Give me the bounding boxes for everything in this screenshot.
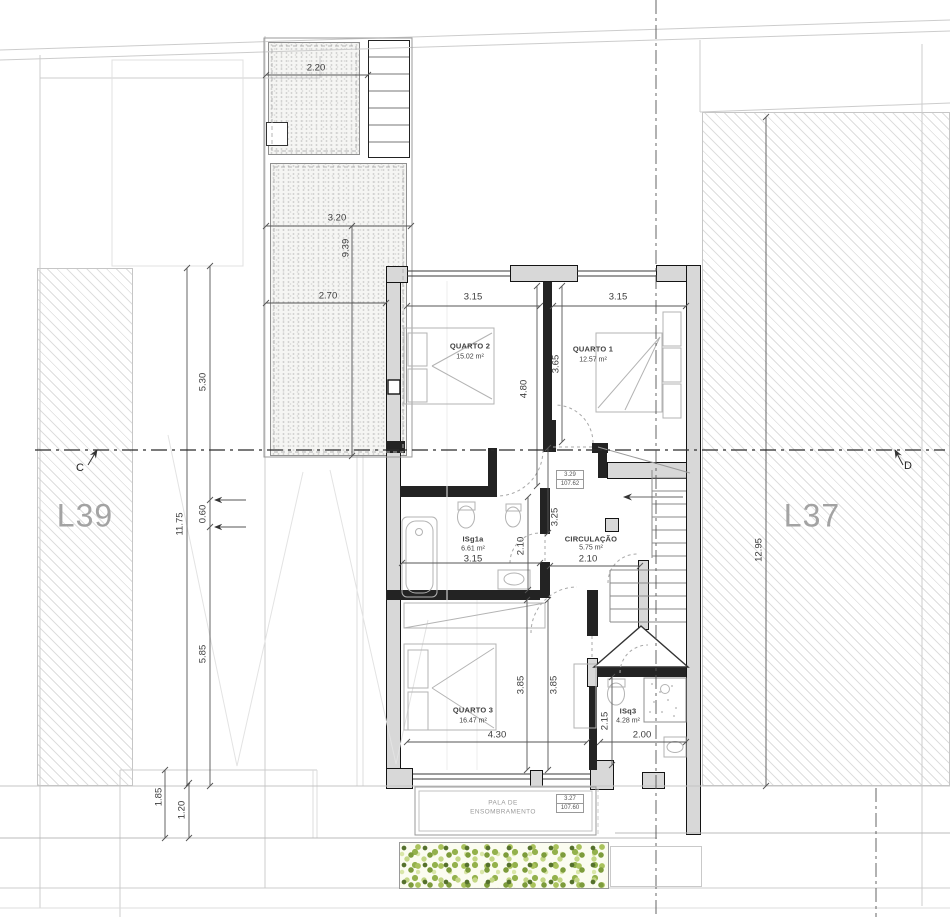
level-marker-floor: 3.29 107.62: [556, 470, 584, 489]
dim-quarto1-depth: 3.65: [551, 355, 562, 374]
dim-quarto2-width: 3.15: [464, 292, 483, 303]
canopy-label-line1: PALA DE: [488, 800, 517, 807]
dim-isq3-depth: 2.15: [600, 712, 611, 731]
dim-left-bottom-b: 1.20: [177, 801, 188, 820]
room-area-quarto1: 12.57 m²: [579, 357, 607, 364]
dim-terrace-width-mid: 3.20: [328, 213, 347, 224]
section-marker-d: D: [904, 460, 912, 472]
section-marker-c: C: [76, 462, 84, 474]
dim-isg1a-depth: 2.10: [516, 537, 527, 556]
dimension-lines: [162, 72, 769, 841]
room-label-quarto2: QUARTO 2: [450, 342, 490, 351]
level-floor-absolute: 107.62: [557, 480, 583, 488]
room-label-circulacao: CIRCULAÇÃO: [565, 535, 617, 544]
dim-left-lower: 5.85: [198, 645, 209, 664]
lot-label-l37: L37: [784, 498, 840, 535]
dim-terrace-width-top: 2.20: [307, 63, 326, 74]
level-canopy-relative: 3.27: [557, 795, 583, 804]
room-area-isq3: 4.28 m²: [616, 718, 640, 725]
empty-planter: [610, 846, 702, 887]
room-label-isg1a: ISg1a: [462, 535, 483, 544]
level-floor-relative: 3.29: [557, 471, 583, 480]
dim-right-lot-depth: 12.95: [754, 538, 765, 562]
hedge-vegetation: [399, 842, 609, 889]
room-area-isg1a: 6.61 m²: [461, 546, 485, 553]
plan-linework: [0, 0, 950, 917]
room-area-circulacao: 5.75 m²: [579, 545, 603, 552]
dim-isq3-width: 2.00: [633, 730, 652, 741]
dim-quarto2-depth: 4.80: [519, 380, 530, 399]
staircase: [594, 447, 690, 667]
room-area-quarto2: 15.02 m²: [456, 354, 484, 361]
dim-left-bottom-a: 1.85: [154, 788, 165, 807]
room-label-quarto1: QUARTO 1: [573, 345, 613, 354]
room-area-quarto3: 16.47 m²: [459, 718, 487, 725]
dim-quarto3-width: 4.30: [488, 730, 507, 741]
dim-circ-depth: 3.25: [550, 508, 561, 527]
room-label-isq3: ISq3: [620, 707, 637, 716]
furniture: [402, 312, 686, 757]
dim-circ-width: 2.10: [579, 554, 598, 565]
dim-terrace-width-low: 2.70: [319, 291, 338, 302]
dim-quarto3-depth-a: 3.85: [516, 676, 527, 695]
lot-label-l39: L39: [57, 498, 113, 535]
dim-isg1a-width: 3.15: [464, 554, 483, 565]
canopy-label-line2: ENSOMBRAMENTO: [470, 809, 536, 816]
dim-terrace-length: 9.39: [341, 239, 352, 258]
dim-left-upper: 5.30: [198, 373, 209, 392]
floor-plan: 3.29 107.62 3.27 107.60 L39 L37 C D QUAR…: [0, 0, 950, 917]
property-lines: [0, 20, 950, 917]
dim-left-small: 0.60: [198, 505, 209, 524]
level-canopy-absolute: 107.60: [557, 804, 583, 812]
room-label-quarto3: QUARTO 3: [453, 706, 493, 715]
dim-quarto1-width: 3.15: [609, 292, 628, 303]
dim-left-total: 11.75: [175, 512, 186, 535]
dim-quarto3-depth-b: 3.85: [549, 676, 560, 695]
level-marker-canopy: 3.27 107.60: [556, 794, 584, 813]
